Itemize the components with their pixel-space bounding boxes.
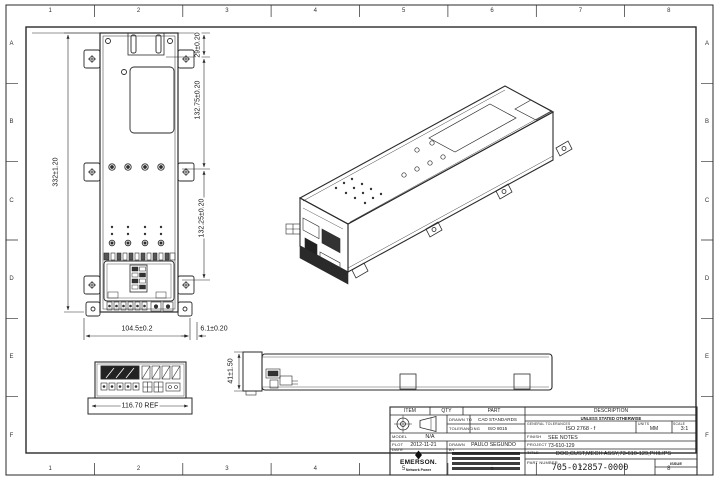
project-value: 73-610-129 bbox=[548, 443, 575, 449]
isometric-view bbox=[286, 86, 572, 284]
title-block-header-qty: QTY bbox=[430, 407, 463, 415]
emerson-logo-subtext: Network Power bbox=[406, 468, 431, 472]
dim-front-top: 29±0.20 bbox=[195, 31, 202, 58]
dim-side-height: 41±1.50 bbox=[228, 357, 235, 384]
title-block-header-item: ITEM bbox=[390, 407, 430, 415]
title-block-header-part: PART bbox=[463, 407, 525, 415]
drawing-sheet: 12345678 12345678 ABCDEF ABCDEF 332±1.20… bbox=[0, 0, 720, 481]
title-value: DOC,CUST,MECH ASSY,73-610-129,PHILIPS bbox=[530, 449, 697, 459]
address-text-block bbox=[452, 452, 520, 472]
drawn-to-value: CAD STANDARDS bbox=[470, 415, 525, 424]
drawn-by-value: PAULO SEGUNDO bbox=[462, 441, 525, 449]
dim-front-offset: 6.1±0.20 bbox=[199, 326, 228, 333]
finish-value: SEE NOTES bbox=[548, 435, 578, 441]
side-view bbox=[234, 352, 552, 395]
scale-value: 3:1 bbox=[672, 425, 697, 433]
front-view bbox=[84, 33, 194, 316]
unless-stated-band: UNLESS STATED OTHERWISE bbox=[525, 415, 697, 421]
dim-detail-width: 116.70 REF bbox=[121, 403, 160, 410]
drawn-to-label: DRAWN TO bbox=[449, 417, 472, 422]
units-value: MM bbox=[636, 425, 672, 433]
dim-front-width: 104.5±0.2 bbox=[120, 326, 153, 333]
dim-front-height: 332±1.20 bbox=[53, 156, 60, 187]
emerson-logo-text: EMERSON. bbox=[400, 459, 437, 466]
title-block-header-description: DESCRIPTION bbox=[525, 407, 697, 415]
part-number-value: 705-012857-0000 bbox=[525, 461, 655, 475]
tolerancing-value: ISO 8015 bbox=[470, 424, 525, 433]
dim-front-lower: 132.25±0.20 bbox=[199, 198, 206, 239]
plot-date-value: 2012-11-21 bbox=[400, 441, 447, 449]
emerson-logo-sub: Network Power bbox=[390, 466, 447, 473]
finish-label: FINISH bbox=[527, 434, 541, 439]
model-value: N/A bbox=[390, 433, 470, 441]
issue-label: ISSUE bbox=[655, 459, 697, 467]
general-tolerances-value: ISO 2768 - f bbox=[525, 425, 636, 433]
projection-symbol-icon bbox=[394, 415, 436, 433]
dim-front-upper: 132.75±0.20 bbox=[195, 80, 202, 121]
project-label: PROJECT bbox=[527, 442, 547, 447]
